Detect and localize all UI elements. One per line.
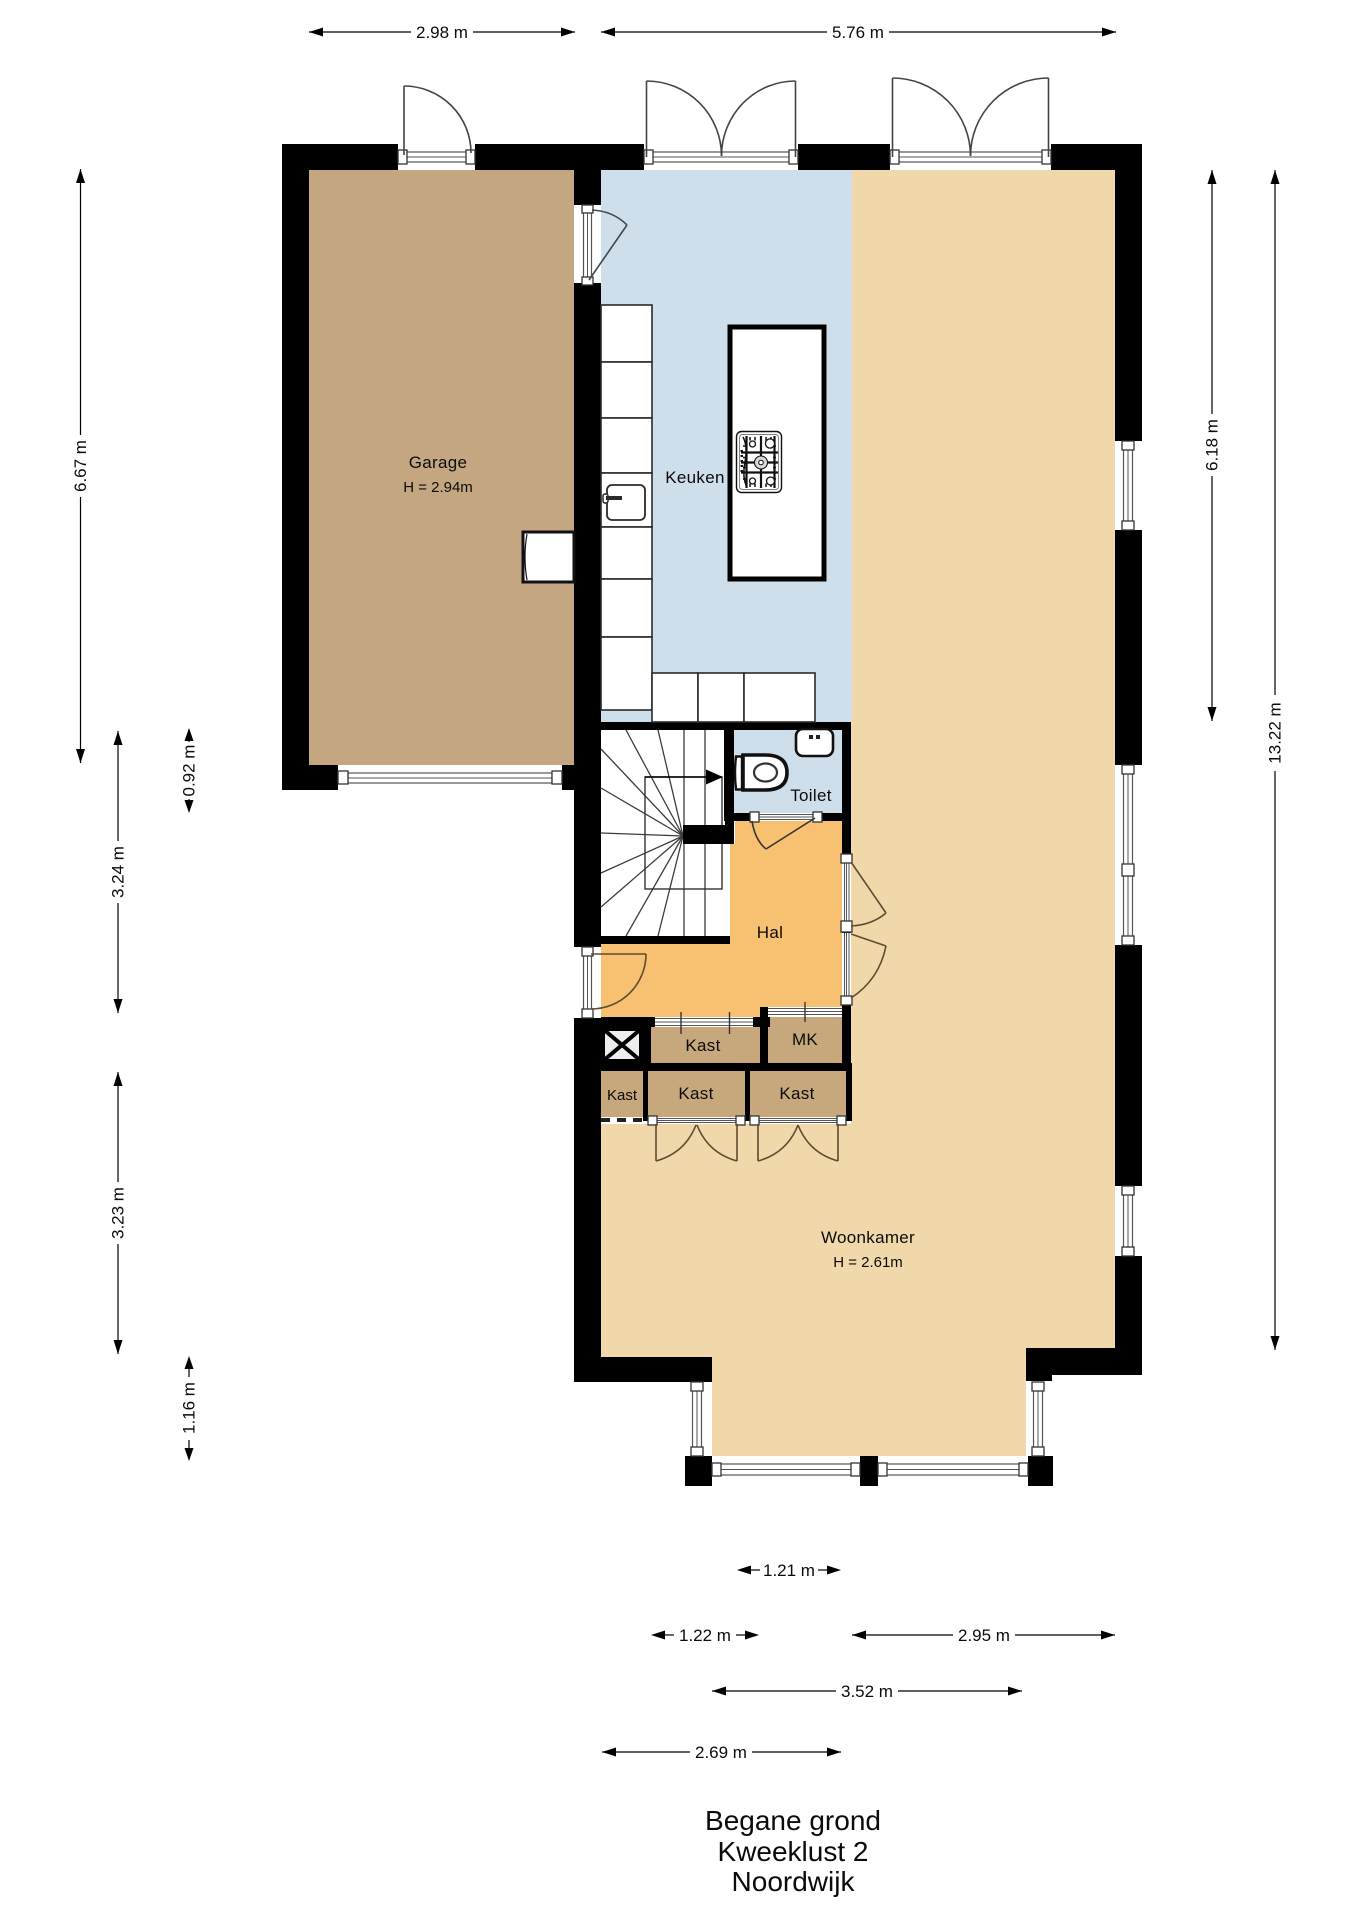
svg-text:Kweeklust 2: Kweeklust 2 [718, 1836, 869, 1867]
svg-text:Toilet: Toilet [790, 786, 832, 805]
svg-text:3.52 m: 3.52 m [841, 1682, 893, 1701]
svg-text:2.98 m: 2.98 m [416, 23, 468, 42]
svg-text:1.22 m: 1.22 m [679, 1626, 731, 1645]
svg-text:2.95 m: 2.95 m [958, 1626, 1010, 1645]
svg-text:1.21 m: 1.21 m [763, 1561, 815, 1580]
svg-text:MK: MK [792, 1030, 818, 1049]
svg-text:3.24 m: 3.24 m [109, 846, 128, 898]
svg-text:6.18 m: 6.18 m [1203, 419, 1222, 471]
svg-text:6.67 m: 6.67 m [71, 440, 90, 492]
svg-text:Hal: Hal [757, 923, 783, 942]
svg-text:Kast: Kast [779, 1084, 814, 1103]
svg-text:Kast: Kast [678, 1084, 713, 1103]
svg-text:0.92 m: 0.92 m [180, 745, 199, 797]
svg-text:2.69 m: 2.69 m [695, 1743, 747, 1762]
svg-text:Kast: Kast [607, 1087, 638, 1104]
svg-text:Noordwijk: Noordwijk [732, 1866, 856, 1897]
svg-text:Keuken: Keuken [665, 468, 724, 487]
svg-text:Woonkamer: Woonkamer [821, 1228, 915, 1247]
svg-text:3.23 m: 3.23 m [109, 1187, 128, 1239]
svg-text:Garage: Garage [409, 453, 468, 472]
svg-text:Kast: Kast [685, 1036, 720, 1055]
svg-text:13.22 m: 13.22 m [1266, 702, 1285, 763]
svg-text:5.76 m: 5.76 m [832, 23, 884, 42]
svg-text:H = 2.94m: H = 2.94m [403, 479, 473, 496]
svg-text:1.16 m: 1.16 m [180, 1382, 199, 1434]
svg-text:H = 2.61m: H = 2.61m [833, 1254, 903, 1271]
svg-text:Begane grond: Begane grond [705, 1805, 881, 1836]
